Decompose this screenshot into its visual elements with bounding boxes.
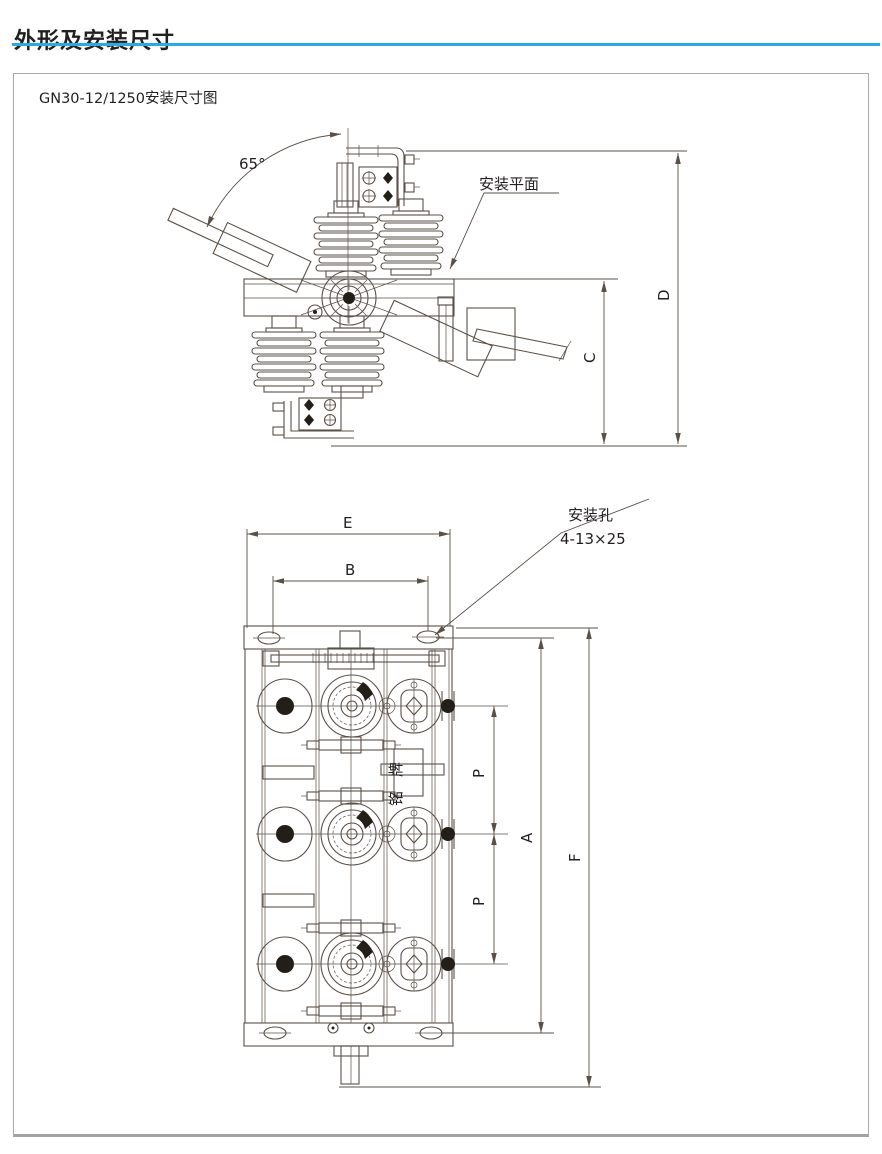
angle-label: 65°: [239, 155, 266, 173]
dim-f-label: F: [566, 853, 584, 862]
dim-p2-label: P: [470, 897, 488, 906]
mounting-hole-spec: 4-13×25: [560, 530, 626, 548]
dimension-c: C: [331, 279, 687, 446]
dimension-b: B: [273, 561, 428, 634]
dim-b-label: B: [345, 561, 355, 579]
figure-panel: GN30-12/1250安装尺寸图: [13, 73, 869, 1137]
dim-e-label: E: [343, 514, 352, 532]
mounting-hole-callout: 安装孔 4-13×25: [435, 499, 649, 635]
dim-a-label: A: [518, 832, 536, 843]
dim-c-label: C: [581, 353, 599, 363]
dim-p1-label: P: [470, 769, 488, 778]
mounting-plane-callout: 安装平面: [450, 175, 559, 269]
nameplate: 铭牌: [381, 749, 444, 806]
side-view-drawing: 65°: [163, 128, 687, 446]
dimension-p1: P: [470, 706, 494, 834]
dimension-f: F: [339, 628, 601, 1087]
dimension-p2: P: [470, 834, 494, 964]
page-title: 外形及安装尺寸: [14, 23, 175, 55]
technical-drawing: 65°: [14, 74, 868, 1134]
dim-d-label: D: [655, 289, 673, 301]
plan-view-drawing: 铭牌 E B: [244, 499, 649, 1087]
mounting-plane-label: 安装平面: [479, 175, 539, 193]
accent-rule: [12, 43, 880, 46]
nameplate-label: 铭牌: [387, 762, 405, 806]
document-page: 外形及安装尺寸 GN30-12/1250安装尺寸图: [0, 0, 882, 1154]
mounting-hole-title: 安装孔: [568, 506, 613, 524]
